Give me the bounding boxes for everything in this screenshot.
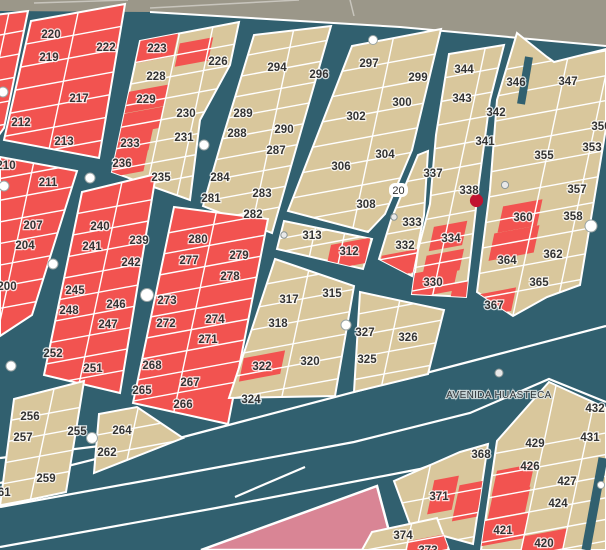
svg-text:313: 313	[302, 230, 321, 242]
svg-text:322: 322	[252, 361, 271, 373]
svg-text:239: 239	[129, 235, 148, 247]
svg-text:424: 424	[548, 498, 568, 510]
svg-text:427: 427	[557, 476, 576, 488]
svg-text:200: 200	[0, 281, 17, 293]
svg-text:312: 312	[339, 246, 358, 258]
svg-text:296: 296	[309, 69, 328, 81]
svg-text:364: 364	[497, 255, 517, 267]
svg-text:308: 308	[356, 199, 376, 211]
svg-text:284: 284	[210, 172, 230, 184]
svg-text:242: 242	[121, 257, 140, 269]
svg-text:420: 420	[534, 538, 553, 550]
svg-text:219: 219	[39, 52, 58, 64]
svg-text:421: 421	[493, 525, 513, 537]
svg-text:332: 332	[395, 240, 414, 252]
svg-text:373: 373	[418, 545, 437, 550]
svg-text:211: 211	[39, 177, 58, 189]
svg-text:287: 287	[266, 145, 285, 157]
svg-text:355: 355	[534, 150, 554, 162]
svg-text:AVENIDA HUASTECA: AVENIDA HUASTECA	[446, 390, 551, 401]
svg-text:429: 429	[525, 438, 544, 450]
svg-text:374: 374	[393, 530, 413, 542]
svg-text:282: 282	[243, 209, 262, 221]
svg-text:315: 315	[322, 288, 342, 300]
svg-text:357: 357	[567, 184, 586, 196]
svg-text:320: 320	[300, 356, 319, 368]
svg-text:217: 217	[69, 93, 88, 105]
svg-text:274: 274	[205, 314, 225, 326]
svg-text:426: 426	[520, 461, 539, 473]
svg-text:255: 255	[67, 426, 87, 438]
svg-text:280: 280	[188, 234, 207, 246]
svg-text:248: 248	[59, 305, 79, 317]
svg-text:431: 431	[580, 432, 600, 444]
svg-text:207: 207	[23, 220, 42, 232]
svg-text:334: 334	[441, 233, 461, 245]
svg-text:283: 283	[252, 188, 271, 200]
svg-text:220: 220	[41, 29, 60, 41]
svg-text:289: 289	[233, 108, 252, 120]
svg-text:327: 327	[355, 327, 374, 339]
svg-text:212: 212	[11, 117, 30, 129]
svg-text:228: 228	[146, 71, 166, 83]
svg-text:304: 304	[375, 149, 395, 161]
svg-text:318: 318	[268, 318, 288, 330]
svg-text:256: 256	[20, 411, 39, 423]
svg-text:294: 294	[267, 62, 287, 74]
svg-text:235: 235	[151, 172, 171, 184]
svg-text:252: 252	[43, 348, 62, 360]
svg-text:222: 222	[96, 42, 115, 54]
svg-text:317: 317	[279, 294, 298, 306]
svg-text:326: 326	[398, 332, 417, 344]
svg-text:241: 241	[82, 241, 102, 253]
svg-text:299: 299	[408, 72, 427, 84]
svg-text:240: 240	[90, 221, 109, 233]
svg-text:247: 247	[98, 319, 117, 331]
svg-text:267: 267	[180, 377, 199, 389]
svg-text:288: 288	[227, 128, 247, 140]
svg-text:324: 324	[241, 394, 261, 406]
svg-text:271: 271	[198, 334, 218, 346]
svg-text:265: 265	[132, 385, 152, 397]
svg-text:346: 346	[506, 77, 525, 89]
svg-text:353: 353	[582, 142, 601, 154]
svg-text:245: 245	[65, 285, 85, 297]
svg-text:204: 204	[15, 240, 35, 252]
svg-text:330: 330	[423, 277, 442, 289]
svg-text:365: 365	[529, 277, 549, 289]
svg-text:347: 347	[558, 76, 577, 88]
svg-text:341: 341	[475, 136, 495, 148]
svg-text:333: 333	[402, 217, 421, 229]
svg-text:259: 259	[36, 473, 55, 485]
svg-text:268: 268	[142, 360, 162, 372]
svg-text:358: 358	[563, 211, 583, 223]
svg-text:300: 300	[392, 97, 411, 109]
svg-text:306: 306	[331, 161, 350, 173]
svg-text:230: 230	[176, 108, 195, 120]
svg-text:262: 262	[97, 447, 116, 459]
svg-text:264: 264	[112, 425, 132, 437]
svg-text:273: 273	[157, 295, 176, 307]
svg-text:257: 257	[13, 432, 32, 444]
svg-text:236: 236	[112, 158, 131, 170]
svg-text:233: 233	[120, 138, 139, 150]
svg-text:213: 213	[54, 136, 73, 148]
svg-text:343: 343	[452, 93, 471, 105]
svg-text:251: 251	[83, 363, 103, 375]
svg-text:337: 337	[423, 168, 442, 180]
svg-text:223: 223	[147, 43, 166, 55]
svg-text:342: 342	[486, 107, 505, 119]
svg-text:302: 302	[346, 111, 365, 123]
svg-text:281: 281	[201, 193, 221, 205]
svg-text:371: 371	[429, 491, 449, 503]
svg-text:261: 261	[0, 487, 11, 499]
svg-text:210: 210	[0, 160, 16, 172]
svg-text:231: 231	[174, 132, 194, 144]
svg-text:278: 278	[220, 271, 240, 283]
svg-text:362: 362	[543, 249, 562, 261]
svg-text:344: 344	[454, 64, 474, 76]
svg-text:290: 290	[274, 124, 293, 136]
svg-text:266: 266	[173, 399, 192, 411]
svg-text:277: 277	[179, 255, 198, 267]
svg-text:350: 350	[591, 121, 606, 133]
svg-text:360: 360	[513, 212, 532, 224]
svg-text:279: 279	[229, 250, 248, 262]
svg-text:338: 338	[459, 185, 479, 197]
svg-text:272: 272	[156, 318, 175, 330]
svg-text:246: 246	[106, 299, 125, 311]
svg-text:367: 367	[484, 300, 503, 312]
svg-text:229: 229	[136, 94, 155, 106]
svg-text:432: 432	[585, 403, 604, 415]
svg-text:325: 325	[357, 354, 377, 366]
svg-text:226: 226	[208, 56, 227, 68]
svg-text:297: 297	[359, 58, 378, 70]
svg-text:20: 20	[392, 185, 404, 197]
svg-text:368: 368	[471, 449, 491, 461]
